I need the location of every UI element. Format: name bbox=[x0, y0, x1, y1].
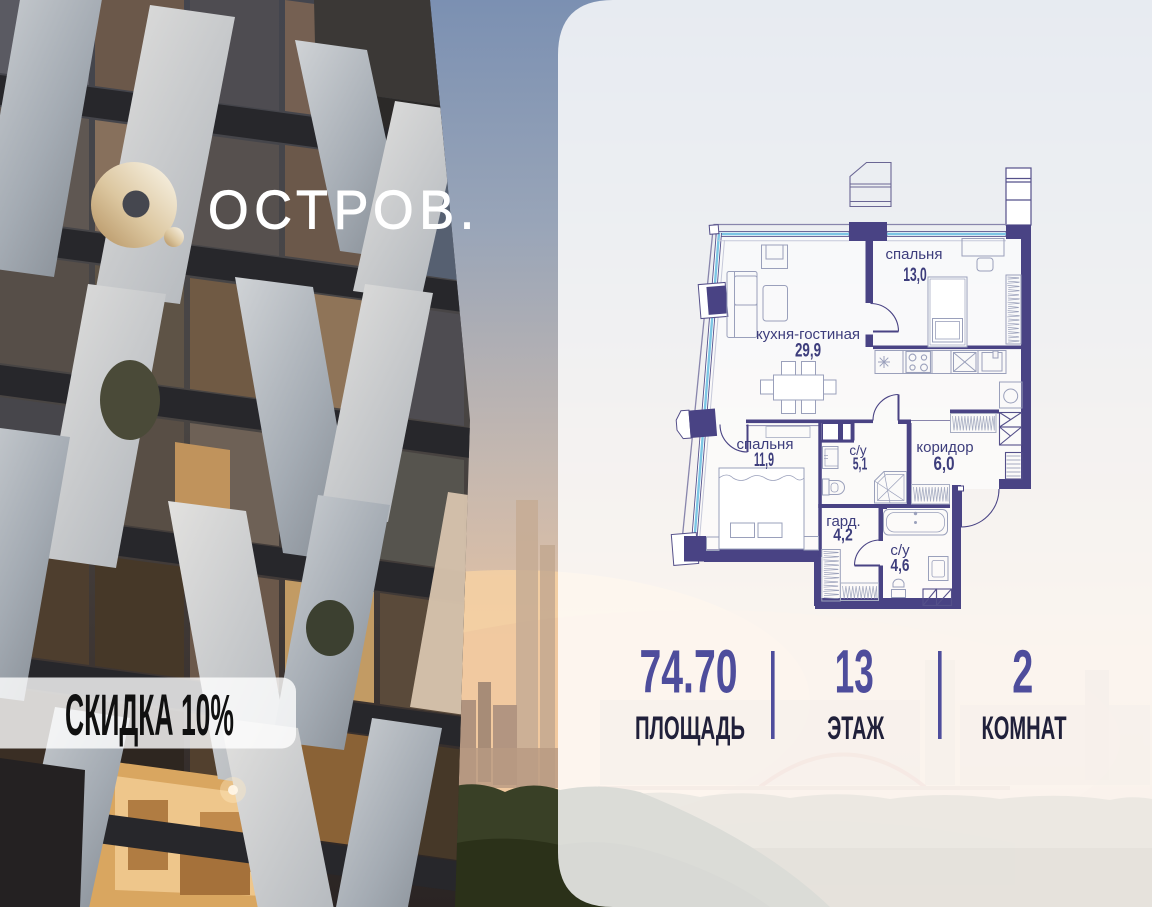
svg-text:ОСТРОВ.: ОСТРОВ. bbox=[208, 179, 480, 241]
svg-text:СКИДКА 10%: СКИДКА 10% bbox=[65, 683, 234, 748]
svg-text:спальня: спальня bbox=[886, 246, 943, 263]
svg-text:КОМНАТ: КОМНАТ bbox=[982, 710, 1067, 746]
svg-text:13: 13 bbox=[835, 638, 874, 706]
svg-text:29,9: 29,9 bbox=[795, 340, 821, 362]
svg-text:5,1: 5,1 bbox=[853, 454, 868, 474]
svg-text:4,6: 4,6 bbox=[891, 555, 910, 575]
svg-text:74.70: 74.70 bbox=[640, 638, 738, 706]
svg-text:2: 2 bbox=[1012, 638, 1033, 706]
svg-text:11,9: 11,9 bbox=[754, 449, 774, 471]
svg-text:ЭТАЖ: ЭТАЖ bbox=[827, 710, 885, 746]
svg-text:ПЛОЩАДЬ: ПЛОЩАДЬ bbox=[635, 710, 745, 746]
svg-text:6,0: 6,0 bbox=[934, 453, 955, 475]
svg-text:4,2: 4,2 bbox=[833, 525, 853, 545]
svg-text:13,0: 13,0 bbox=[903, 264, 927, 286]
